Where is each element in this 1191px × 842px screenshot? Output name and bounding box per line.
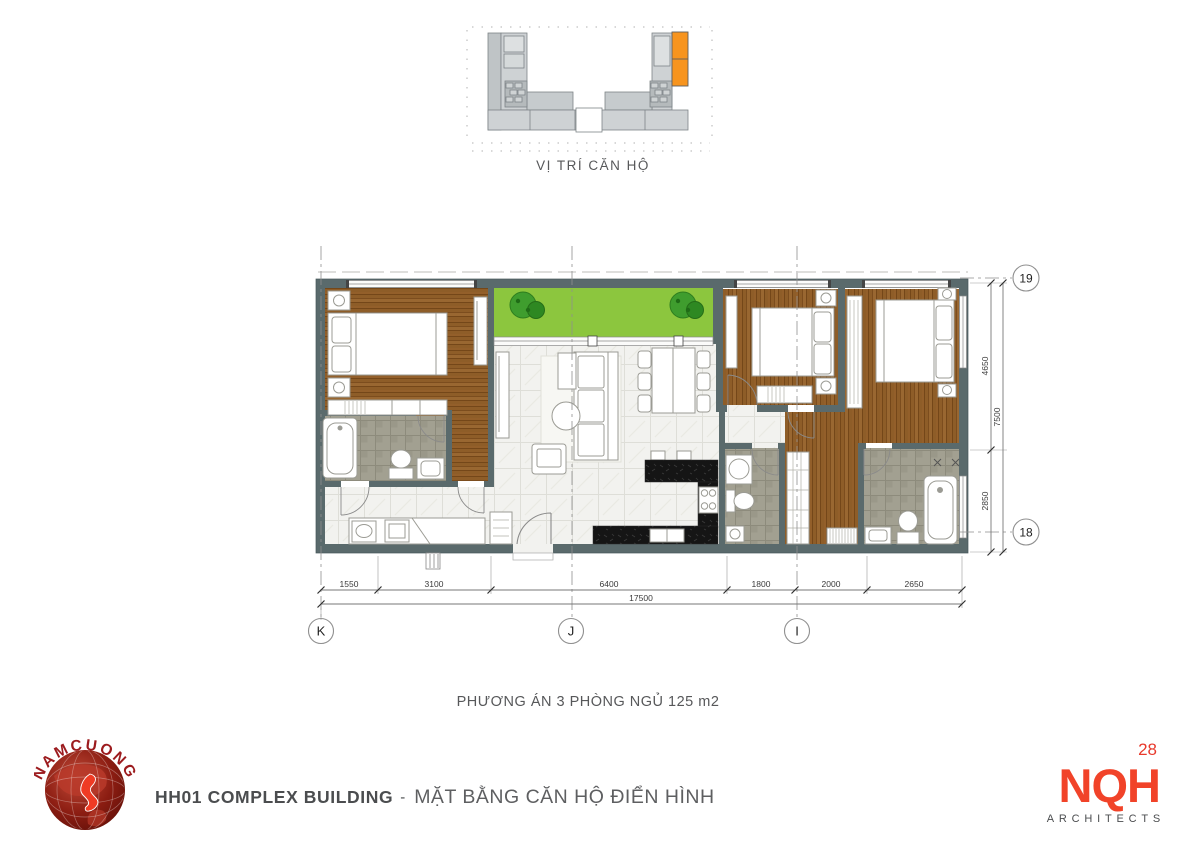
site-core-right: [650, 81, 672, 107]
bedroom-1-corridor-floor: [452, 416, 488, 481]
drawing-title: MẶT BẰNG CĂN HỘ ĐIỂN HÌNH: [414, 786, 714, 809]
utility-fixtures: [349, 518, 485, 544]
project-title: HH01 COMPLEX BUILDING: [155, 787, 393, 808]
toilet: [897, 532, 919, 544]
dining-set: [638, 348, 710, 413]
window-bathroom-3-side: [960, 476, 967, 538]
chaise: [558, 353, 576, 389]
grid-label-J: J: [568, 624, 575, 639]
grid-label-I: I: [795, 624, 799, 639]
title-separator: -: [400, 789, 405, 806]
dim-3100: 3100: [425, 579, 444, 589]
dim-2650: 2650: [905, 579, 924, 589]
bar-stool: [651, 451, 665, 460]
dim-1800: 1800: [752, 579, 771, 589]
floor-plan: K J I 19 18: [309, 246, 1040, 644]
window-bedroom-1: [346, 280, 477, 288]
floor-plan-caption: PHƯƠNG ÁN 3 PHÒNG NGỦ 125 m2: [438, 694, 738, 710]
nqh-logo-block: 28 NQH ARCHITECTS: [1047, 741, 1160, 825]
tv-cabinet: [496, 352, 509, 438]
site-plan-caption: VỊ TRÍ CĂN HỘ: [443, 158, 743, 173]
dim-4650: 4650: [980, 356, 990, 375]
site-building: [488, 33, 688, 132]
grid-label-19: 19: [1019, 272, 1033, 286]
dim-2850: 2850: [980, 491, 990, 510]
coffee-table: [552, 402, 580, 430]
nqh-logo-text: NQH: [1047, 762, 1160, 809]
window-bedroom-3-side: [960, 296, 967, 368]
drawing-canvas: K J I 19 18: [0, 0, 1191, 842]
kitchen-counter: [645, 460, 718, 482]
dim-6400: 6400: [600, 579, 619, 589]
namcuong-logo: NAMCUONG: [34, 724, 136, 836]
site-highlight-unit: [672, 32, 688, 86]
site-core-left: [505, 81, 527, 107]
wardrobe: [787, 452, 809, 544]
grid-label-18: 18: [1019, 526, 1033, 540]
balcony-sliding-door: [494, 336, 713, 346]
nqh-logo-subtext: ARCHITECTS: [1047, 814, 1165, 825]
wardrobe: [328, 400, 447, 415]
dim-2000: 2000: [822, 579, 841, 589]
site-key-plan: [467, 27, 712, 151]
dim-total-17500: 17500: [629, 593, 653, 603]
grid-label-K: K: [317, 624, 326, 639]
window-bedroom-3: [862, 280, 951, 288]
drawing-sheet: K J I 19 18: [0, 0, 1191, 842]
dim-1550: 1550: [340, 579, 359, 589]
window-bedroom-2: [734, 280, 831, 288]
sink: [726, 526, 744, 542]
entrance-opening: [513, 544, 553, 553]
page-number: 28: [1047, 741, 1157, 758]
toilet: [389, 468, 413, 479]
entrance-step: [513, 553, 553, 560]
sheet-title: HH01 COMPLEX BUILDING - MẶT BẰNG CĂN HỘ …: [155, 782, 715, 812]
dim-total-7500: 7500: [992, 407, 1002, 426]
wardrobe: [757, 386, 812, 403]
wardrobe: [847, 296, 862, 408]
bar-stool: [677, 451, 691, 460]
